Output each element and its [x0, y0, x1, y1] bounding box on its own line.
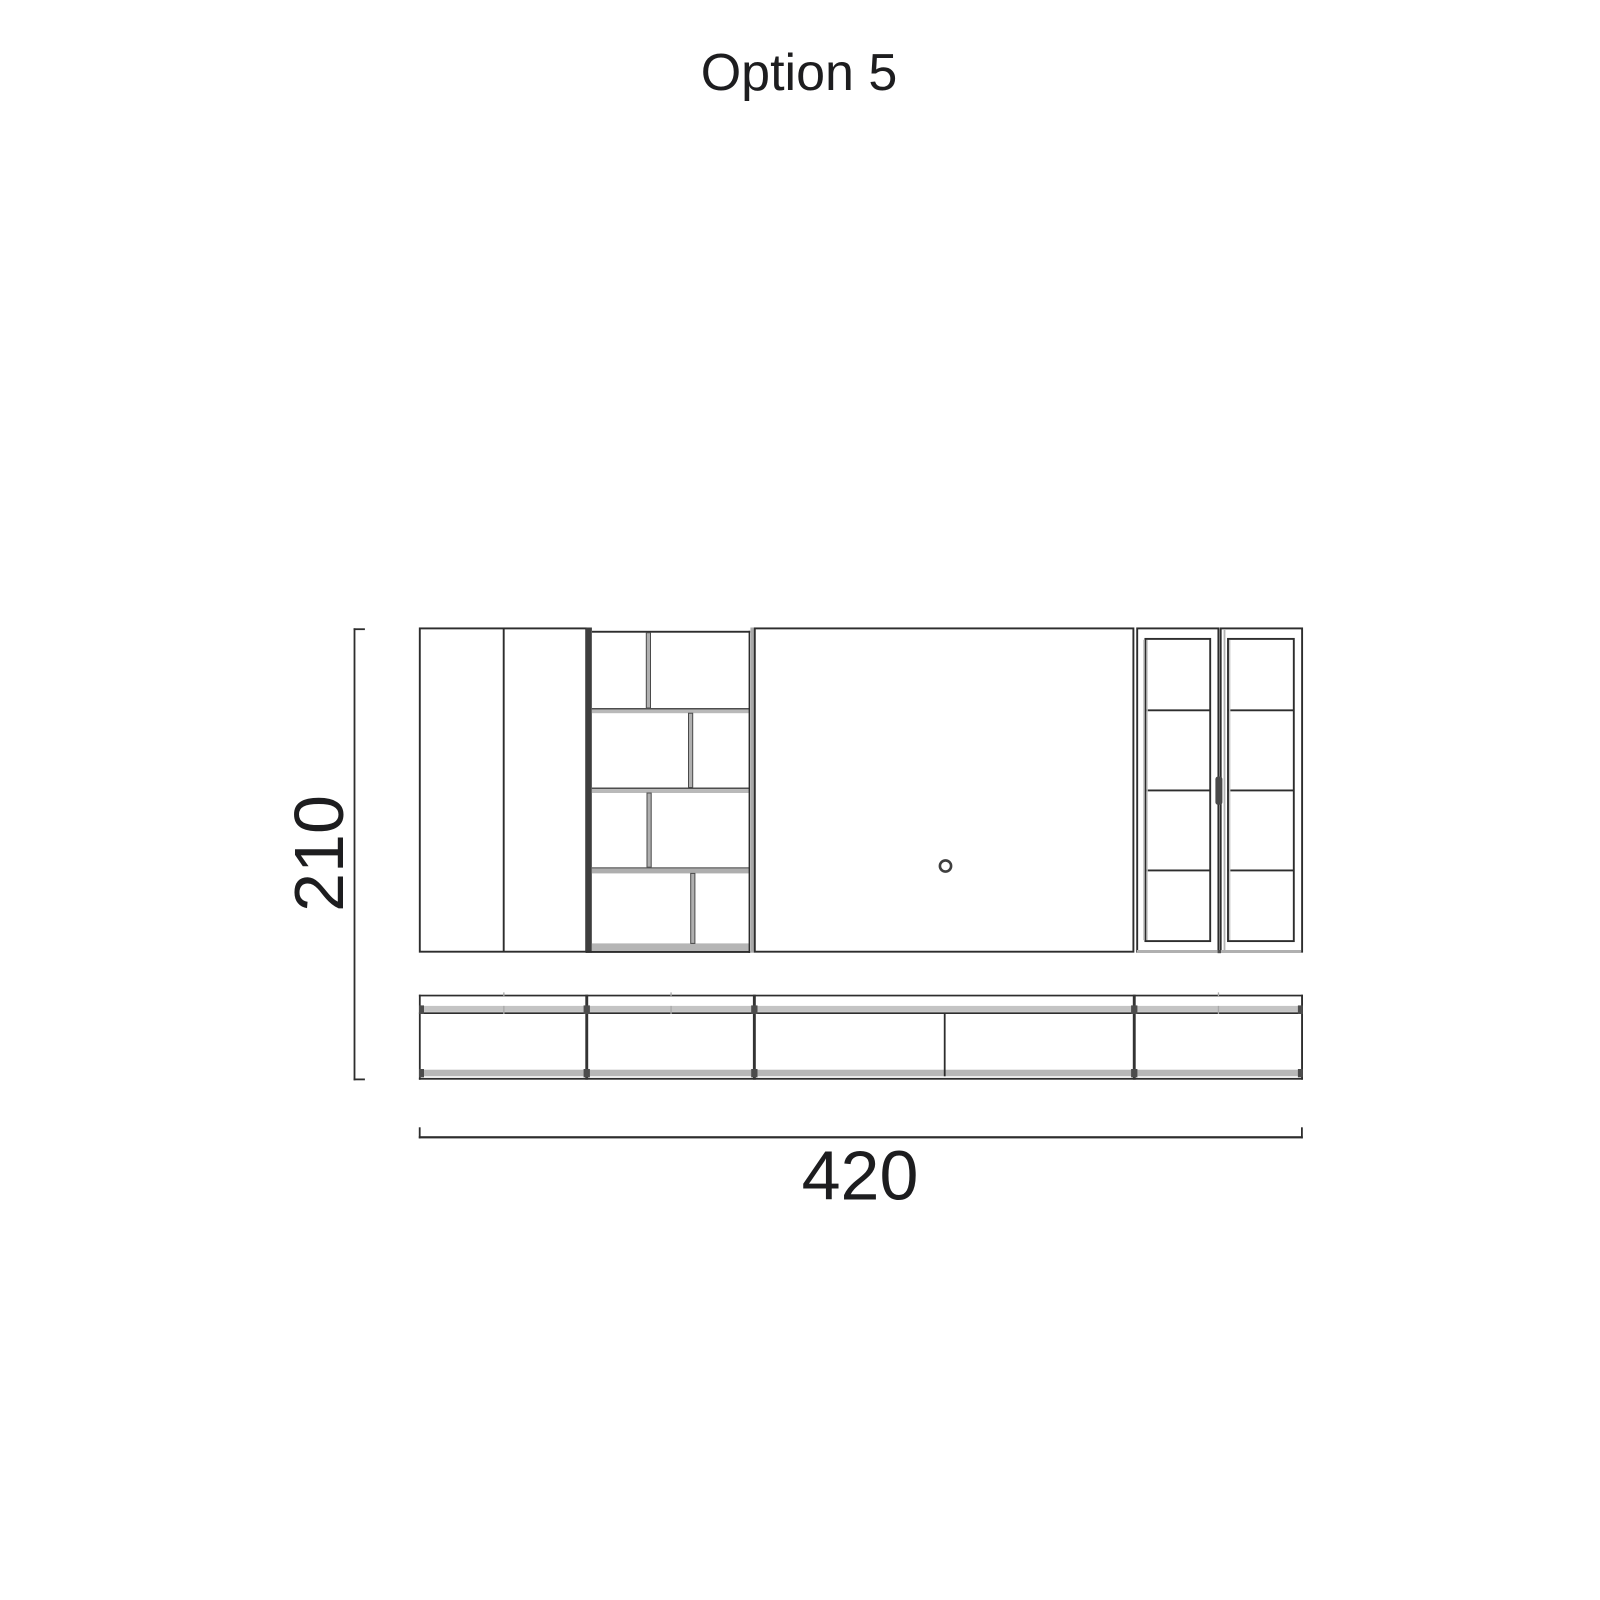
- svg-text:210: 210: [280, 795, 358, 912]
- svg-text:420: 420: [802, 1136, 919, 1214]
- svg-text:Option 5: Option 5: [701, 44, 898, 102]
